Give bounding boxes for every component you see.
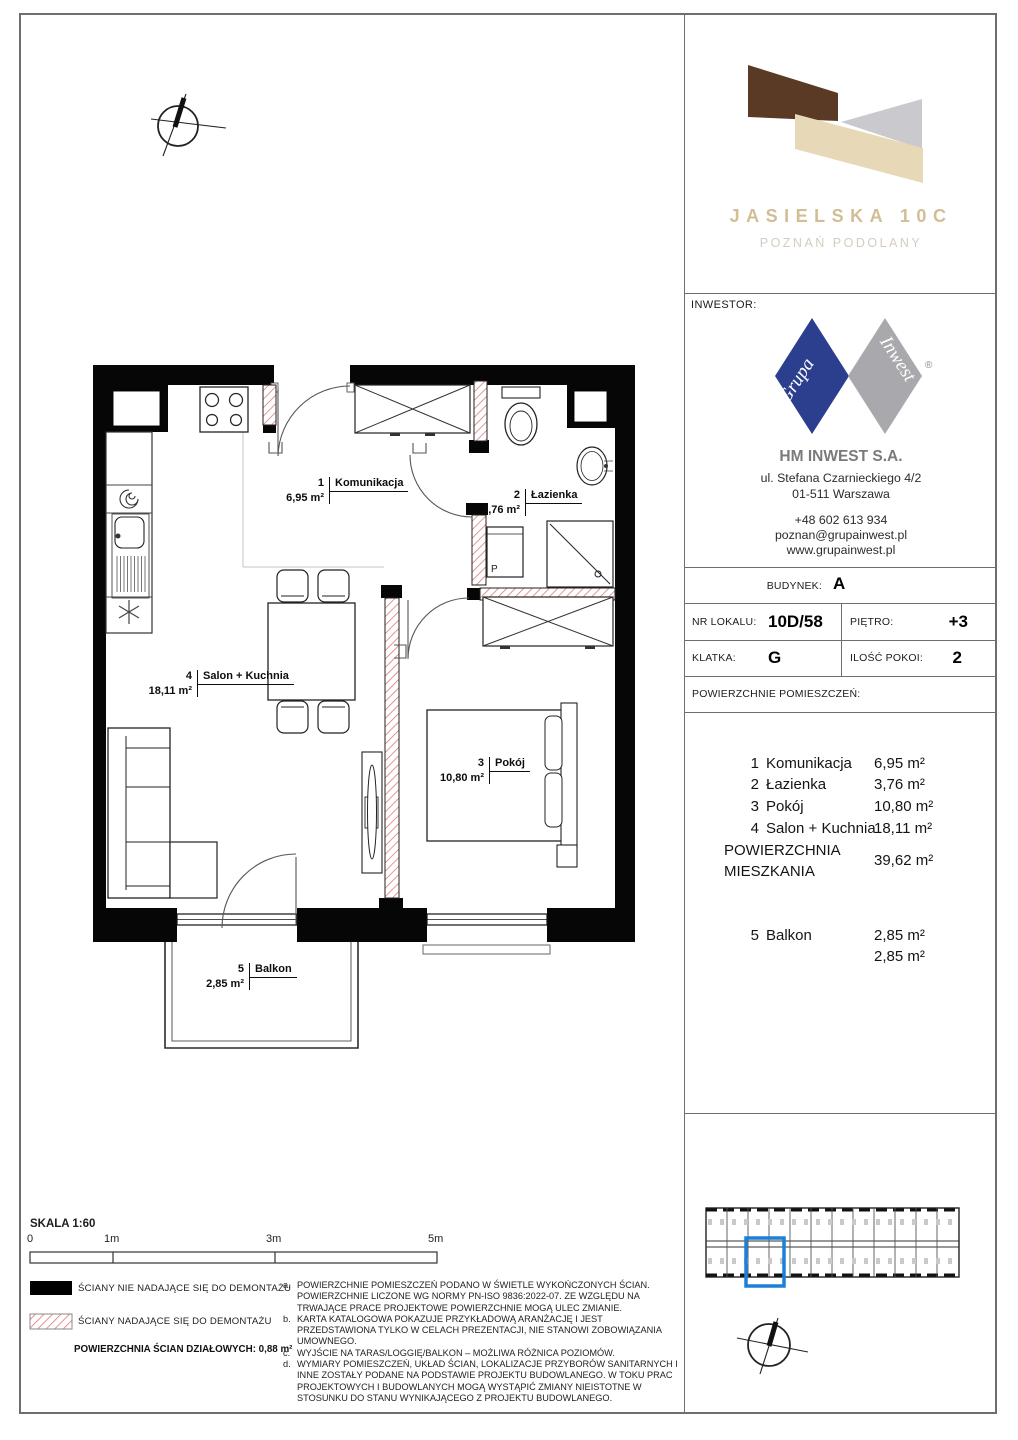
- scale-tick: 5m: [428, 1233, 443, 1245]
- room-area: 10,80 m²: [429, 772, 489, 785]
- room-number: 5: [189, 963, 249, 978]
- klatka-value: G: [768, 648, 781, 668]
- room-label-pokoj: 3 Pokój 10,80 m²: [429, 757, 530, 785]
- area-row-name: Salon + Kuchnia: [766, 820, 876, 837]
- area-row-name: Komunikacja: [766, 755, 852, 772]
- footnote-letter: c.: [283, 1348, 297, 1359]
- divider: [685, 1113, 997, 1114]
- budynek-value: A: [833, 574, 845, 594]
- footnotes: a. POWIERZCHNIE POMIESZCZEŃ PODANO W ŚWI…: [283, 1280, 683, 1404]
- footnote-letter: a.: [283, 1280, 297, 1314]
- area-row-name: Pokój: [766, 798, 804, 815]
- label-rule: [329, 492, 408, 504]
- area-row-no: 1: [685, 755, 759, 772]
- area-row-no: 2: [685, 776, 759, 793]
- room-area: 2,85 m²: [189, 978, 249, 991]
- divider: [685, 567, 997, 568]
- room-name: Komunikacja: [329, 477, 408, 492]
- label-rule: [489, 772, 530, 784]
- legend-solid-label: ŚCIANY NIE NADAJĄCE SIĘ DO DEMONTAŻU: [78, 1283, 291, 1294]
- klatka-label: KLATKA:: [692, 652, 736, 664]
- area-row-value: 10,80 m²: [874, 798, 933, 815]
- balcony-row-name: Balkon: [766, 927, 812, 944]
- nr-lokalu-label: NR LOKALU:: [692, 616, 756, 628]
- room-name: Salon + Kuchnia: [197, 670, 294, 685]
- footnote: b. KARTA KATALOGOWA POKAZUJE PRZYKŁADOWĄ…: [283, 1314, 683, 1348]
- company-website: www.grupainwest.pl: [685, 543, 997, 557]
- room-number: 2: [465, 489, 525, 504]
- company-address-line1: ul. Stefana Czarnieckiego 4/2: [685, 471, 997, 485]
- scale-tick: 0: [27, 1233, 33, 1245]
- brand-title: JASIELSKA 10C: [685, 206, 997, 227]
- table-cell-divider: [841, 604, 842, 676]
- scale-tick: 1m: [104, 1233, 119, 1245]
- scale-tick: 3m: [266, 1233, 281, 1245]
- divider: [685, 712, 997, 713]
- areas-header: POWIERZCHNIE POMIESZCZEŃ:: [692, 688, 860, 700]
- company-email: poznan@grupainwest.pl: [685, 528, 997, 542]
- legend-hatched-label: ŚCIANY NADAJĄCE SIĘ DO DEMONTAŻU: [78, 1316, 272, 1327]
- area-row-value: 6,95 m²: [874, 755, 925, 772]
- footnote: a. POWIERZCHNIE POMIESZCZEŃ PODANO W ŚWI…: [283, 1280, 683, 1314]
- divider: [685, 293, 997, 294]
- company-name: HM INWEST S.A.: [685, 448, 997, 466]
- room-label-salon: 4 Salon + Kuchnia 18,11 m²: [137, 670, 294, 698]
- footnote: d. WYMIARY POMIESZCZEŃ, UKŁAD ŚCIAN, LOK…: [283, 1359, 683, 1404]
- total-area-label-line2: MIESZKANIA: [724, 863, 815, 880]
- area-row-no: 3: [685, 798, 759, 815]
- room-number: 3: [429, 757, 489, 772]
- budynek-label: BUDYNEK:: [685, 580, 822, 592]
- room-number: 4: [137, 670, 197, 685]
- footnote-text: WYMIARY POMIESZCZEŃ, UKŁAD ŚCIAN, LOKALI…: [297, 1359, 683, 1404]
- room-name: Balkon: [249, 963, 297, 978]
- room-area: 3,76 m²: [465, 504, 525, 517]
- room-name: Łazienka: [525, 489, 582, 504]
- label-rule: [249, 978, 297, 990]
- room-name: Pokój: [489, 757, 530, 772]
- scale-label: SKALA 1:60: [30, 1218, 95, 1230]
- area-row-name: Łazienka: [766, 776, 826, 793]
- room-label-komunikacja: 1 Komunikacja 6,95 m²: [269, 477, 408, 505]
- balcony-row-value: 2,85 m²: [874, 927, 925, 944]
- area-row-value: 3,76 m²: [874, 776, 925, 793]
- room-label-lazienka: 2 Łazienka 3,76 m²: [465, 489, 582, 517]
- company-address-line2: 01-511 Warszawa: [685, 487, 997, 501]
- footnote-letter: d.: [283, 1359, 297, 1404]
- room-area: 18,11 m²: [137, 685, 197, 698]
- room-area: 6,95 m²: [269, 492, 329, 505]
- footnote-text: KARTA KATALOGOWA POKAZUJE PRZYKŁADOWĄ AR…: [297, 1314, 683, 1348]
- room-number: 1: [269, 477, 329, 492]
- pietro-value: +3: [900, 612, 968, 632]
- ilosc-pokoi-value: 2: [900, 648, 962, 668]
- footnote-text: WYJŚCIE NA TARAS/LOGGIĘ/BALKON – MOŻLIWA…: [297, 1348, 683, 1359]
- nr-lokalu-value: 10D/58: [768, 612, 823, 632]
- total-area-label-line1: POWIERZCHNIA: [724, 842, 841, 859]
- balcony-total-value: 2,85 m²: [874, 948, 925, 965]
- catalog-card-page: P: [0, 0, 1018, 1440]
- pietro-label: PIĘTRO:: [850, 616, 893, 628]
- partition-area-note: POWIERZCHNIA ŚCIAN DZIAŁOWYCH: 0,88 m²: [74, 1344, 292, 1355]
- balcony-row-no: 5: [685, 927, 759, 944]
- total-area-value: 39,62 m²: [874, 852, 933, 869]
- label-rule: [525, 504, 582, 516]
- divider: [685, 676, 997, 677]
- company-phone: +48 602 613 934: [685, 513, 997, 527]
- footnote-letter: b.: [283, 1314, 297, 1348]
- investor-label: INWESTOR:: [691, 299, 757, 311]
- room-label-balkon: 5 Balkon 2,85 m²: [189, 963, 297, 991]
- brand-subtitle: POZNAŃ PODOLANY: [685, 236, 997, 250]
- footnote-text: POWIERZCHNIE POMIESZCZEŃ PODANO W ŚWIETL…: [297, 1280, 683, 1314]
- footnote: c. WYJŚCIE NA TARAS/LOGGIĘ/BALKON – MOŻL…: [283, 1348, 683, 1359]
- area-row-value: 18,11 m²: [874, 820, 932, 837]
- area-row-no: 4: [685, 820, 759, 837]
- label-rule: [197, 685, 294, 697]
